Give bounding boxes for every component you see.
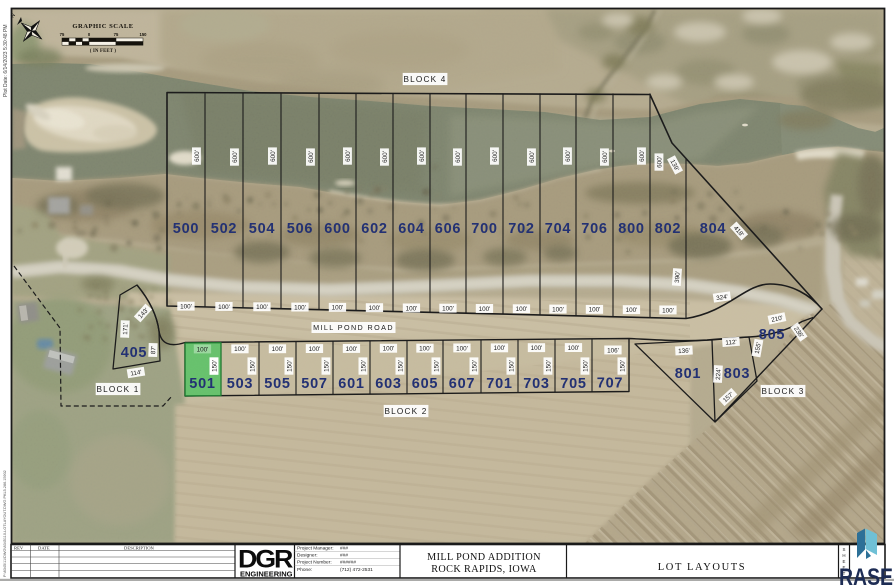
svg-text:100': 100' (294, 304, 306, 311)
svg-text:507: 507 (301, 376, 328, 392)
svg-text:LOT LAYOUTS: LOT LAYOUTS (658, 562, 746, 573)
svg-text:600': 600' (419, 150, 426, 162)
svg-text:100': 100' (494, 345, 506, 352)
svg-text:DATE: DATE (38, 546, 50, 551)
svg-text:150': 150' (397, 360, 404, 372)
svg-text:150': 150' (360, 360, 367, 372)
svg-text:Project Manager:: Project Manager: (297, 546, 334, 552)
svg-text:136': 136' (678, 347, 690, 355)
svg-text:150': 150' (471, 360, 478, 372)
svg-text:Phone:: Phone: (297, 567, 312, 573)
svg-text:100': 100' (180, 304, 192, 311)
svg-text:75: 75 (114, 32, 119, 37)
svg-text:600: 600 (324, 221, 351, 237)
svg-text:RASE: RASE (839, 564, 893, 588)
svg-text:606: 606 (435, 221, 462, 237)
svg-text:703: 703 (523, 376, 550, 392)
svg-text:506: 506 (287, 221, 314, 237)
svg-text:BLOCK 2: BLOCK 2 (385, 407, 428, 416)
svg-text:701: 701 (486, 376, 513, 392)
svg-text:171': 171' (122, 323, 129, 335)
svg-text:600': 600' (345, 150, 352, 162)
svg-text:607: 607 (449, 376, 476, 392)
svg-text:800: 800 (618, 221, 645, 237)
svg-text:150': 150' (249, 360, 256, 372)
svg-text:602: 602 (361, 221, 388, 237)
svg-text:100': 100' (456, 345, 468, 352)
svg-text:( IN FEET ): ( IN FEET ) (90, 49, 116, 54)
svg-text:600': 600' (270, 150, 277, 162)
svg-text:Project Number:: Project Number: (297, 560, 332, 566)
svg-text:600': 600' (194, 150, 201, 162)
svg-text:H: H (842, 553, 845, 558)
svg-text:112': 112' (725, 339, 737, 347)
svg-text:100': 100' (256, 304, 268, 311)
svg-text:100': 100' (662, 307, 674, 314)
svg-text:600': 600' (656, 156, 663, 168)
svg-text:503: 503 (227, 376, 254, 392)
svg-text:GRAPHIC SCALE: GRAPHIC SCALE (72, 23, 133, 30)
svg-text:600': 600' (382, 151, 389, 163)
svg-text:100': 100' (346, 346, 358, 353)
svg-text:603: 603 (375, 376, 402, 392)
svg-text:600': 600' (455, 151, 462, 163)
svg-text:100': 100' (369, 305, 381, 312)
svg-text:600': 600' (529, 151, 536, 163)
svg-text:801: 801 (675, 366, 702, 382)
svg-text:600': 600' (232, 151, 239, 163)
svg-text:BLOCK 1: BLOCK 1 (97, 385, 140, 394)
svg-text:150': 150' (619, 360, 626, 372)
svg-text:87': 87' (150, 346, 157, 354)
svg-text:702: 702 (508, 221, 535, 237)
svg-text:805: 805 (759, 327, 786, 343)
svg-text:Plot Date: 6/14/2023 5:30:48 P: Plot Date: 6/14/2023 5:30:48 PM (3, 24, 9, 97)
svg-text:BLOCK 3: BLOCK 3 (762, 387, 805, 396)
svg-text:106': 106' (607, 347, 619, 354)
svg-text:BLOCK 4: BLOCK 4 (404, 75, 447, 84)
svg-text:Designer:: Designer: (297, 553, 318, 559)
svg-text:150: 150 (140, 32, 148, 37)
svg-text:600': 600' (492, 150, 499, 162)
svg-text:505: 505 (264, 376, 291, 392)
svg-text:MILL POND ROAD: MILL POND ROAD (313, 323, 394, 332)
svg-text:###: ### (340, 553, 348, 559)
svg-text:600': 600' (308, 151, 315, 163)
svg-text:100': 100' (332, 305, 344, 312)
svg-text:604: 604 (398, 221, 425, 237)
svg-text:600': 600' (639, 150, 646, 162)
svg-text:DESCRIPTION: DESCRIPTION (124, 546, 155, 551)
svg-text:150': 150' (582, 360, 589, 372)
svg-text:804: 804 (700, 221, 727, 237)
svg-text:100': 100' (218, 304, 230, 311)
svg-text:704: 704 (545, 221, 572, 237)
svg-text:150': 150' (433, 360, 440, 372)
svg-text:150': 150' (211, 360, 218, 372)
svg-text:100': 100' (442, 306, 454, 313)
svg-text:######: ###### (340, 560, 356, 566)
svg-text:405: 405 (121, 345, 148, 361)
svg-text:500: 500 (173, 221, 200, 237)
svg-text:100': 100' (589, 307, 601, 314)
svg-text:100': 100' (309, 346, 321, 353)
svg-text:100': 100' (479, 306, 491, 313)
svg-text:100': 100' (568, 345, 580, 352)
svg-text:605: 605 (412, 376, 439, 392)
svg-text:601: 601 (338, 376, 365, 392)
svg-text:P:\8345\11\DWG\8345110-LOTLAYO: P:\8345\11\DWG\8345110-LOTLAYOUT.DWG PKL… (3, 470, 7, 577)
svg-text:ENGINEERING: ENGINEERING (240, 570, 293, 579)
svg-text:100': 100' (419, 346, 431, 353)
svg-text:100': 100' (552, 306, 564, 313)
svg-text:S: S (843, 547, 846, 552)
svg-text:803: 803 (724, 366, 751, 382)
svg-text:100': 100' (406, 305, 418, 312)
svg-text:REV: REV (14, 546, 24, 551)
svg-text:600': 600' (565, 150, 572, 162)
svg-text:(712) 472-2531: (712) 472-2531 (340, 567, 373, 573)
svg-text:100': 100' (272, 346, 284, 353)
svg-text:75: 75 (60, 32, 65, 37)
svg-text:100': 100' (531, 345, 543, 352)
svg-text:501: 501 (189, 376, 216, 392)
svg-text:700: 700 (471, 221, 498, 237)
svg-text:150': 150' (323, 360, 330, 372)
svg-text:504: 504 (249, 221, 276, 237)
svg-text:600': 600' (602, 151, 609, 163)
svg-text:150': 150' (286, 360, 293, 372)
svg-text:100': 100' (234, 346, 246, 353)
svg-text:706: 706 (581, 221, 608, 237)
svg-text:390': 390' (674, 271, 682, 283)
svg-text:100': 100' (626, 307, 638, 314)
svg-text:707: 707 (597, 376, 624, 392)
svg-text:150': 150' (545, 360, 552, 372)
svg-text:705: 705 (560, 376, 587, 392)
svg-text:ROCK RAPIDS, IOWA: ROCK RAPIDS, IOWA (431, 564, 537, 575)
svg-text:802: 802 (655, 221, 682, 237)
svg-text:###: ### (340, 546, 348, 552)
svg-text:MILL POND ADDITION: MILL POND ADDITION (427, 552, 541, 563)
svg-text:100': 100' (516, 306, 528, 313)
svg-text:150': 150' (508, 360, 515, 372)
svg-text:100': 100' (383, 346, 395, 353)
svg-text:224': 224' (715, 368, 723, 380)
svg-text:502: 502 (211, 221, 238, 237)
svg-text:100': 100' (197, 346, 209, 353)
